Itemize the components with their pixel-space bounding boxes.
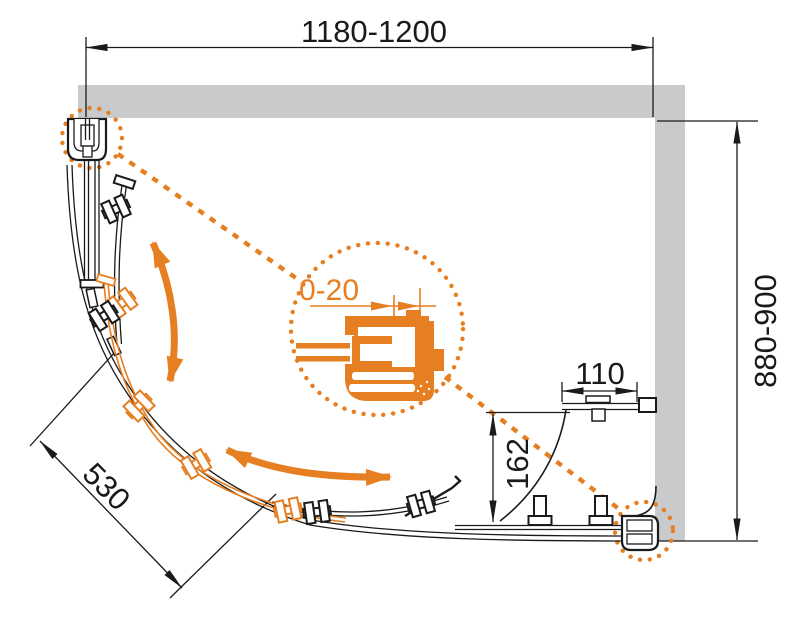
- side-panel-clamp-plate: [586, 396, 610, 403]
- door-top-cap: [114, 175, 135, 189]
- dim-adjustment-label: 0-20: [299, 274, 359, 307]
- side-panel-wall-bracket: [639, 398, 656, 412]
- top-wall: [78, 85, 685, 118]
- door-slide-arrow-upper: [153, 243, 174, 381]
- dim-adjustment-arrow: [371, 302, 392, 311]
- fixed-panel-left-glass: [85, 161, 100, 280]
- door-slide-arrow-lower: [227, 450, 390, 477]
- detail-view: 0-20: [296, 274, 444, 401]
- dim-door-opening-label: 530: [76, 456, 137, 517]
- fixed-panel-left: [81, 161, 104, 288]
- rail-clamp: [590, 496, 613, 525]
- door-roller-open: [273, 497, 304, 523]
- wall-profile-bottom-right: [622, 486, 658, 550]
- detail-leader-line-1: [118, 154, 303, 283]
- side-panel-clamp-foot: [592, 409, 605, 421]
- dim-door-opening: 530: [30, 352, 276, 598]
- rail-clamp: [529, 496, 552, 525]
- wall-profile-fillet: [622, 486, 656, 517]
- walls: [78, 85, 685, 541]
- dim-door-opening-ext-1: [30, 352, 115, 446]
- right-wall: [655, 85, 685, 541]
- dim-width-label: 1180-1200: [301, 14, 447, 49]
- wall-profile-top-left: [68, 119, 106, 160]
- dim-side-panel: 110: [562, 356, 637, 402]
- dim-door-opening-ext-2: [170, 494, 276, 598]
- diagram-canvas: 1180-1200 880-900: [0, 0, 800, 625]
- dim-side-panel-label: 110: [575, 356, 624, 391]
- technical-drawing: 1180-1200 880-900: [0, 0, 800, 625]
- glass-pane-line: [296, 356, 350, 362]
- door-edge-knob: [86, 288, 98, 307]
- dim-depth-label: 880-900: [748, 274, 783, 388]
- profile-cross-section: [296, 310, 444, 401]
- dim-adjustment-arrow: [398, 302, 419, 311]
- side-panel-bar: [562, 404, 650, 410]
- door-roller: [99, 194, 132, 224]
- dim-panel-offset-label: 162: [500, 438, 535, 490]
- dim-panel-offset: 162: [486, 413, 570, 523]
- glass-pane-line: [296, 343, 350, 349]
